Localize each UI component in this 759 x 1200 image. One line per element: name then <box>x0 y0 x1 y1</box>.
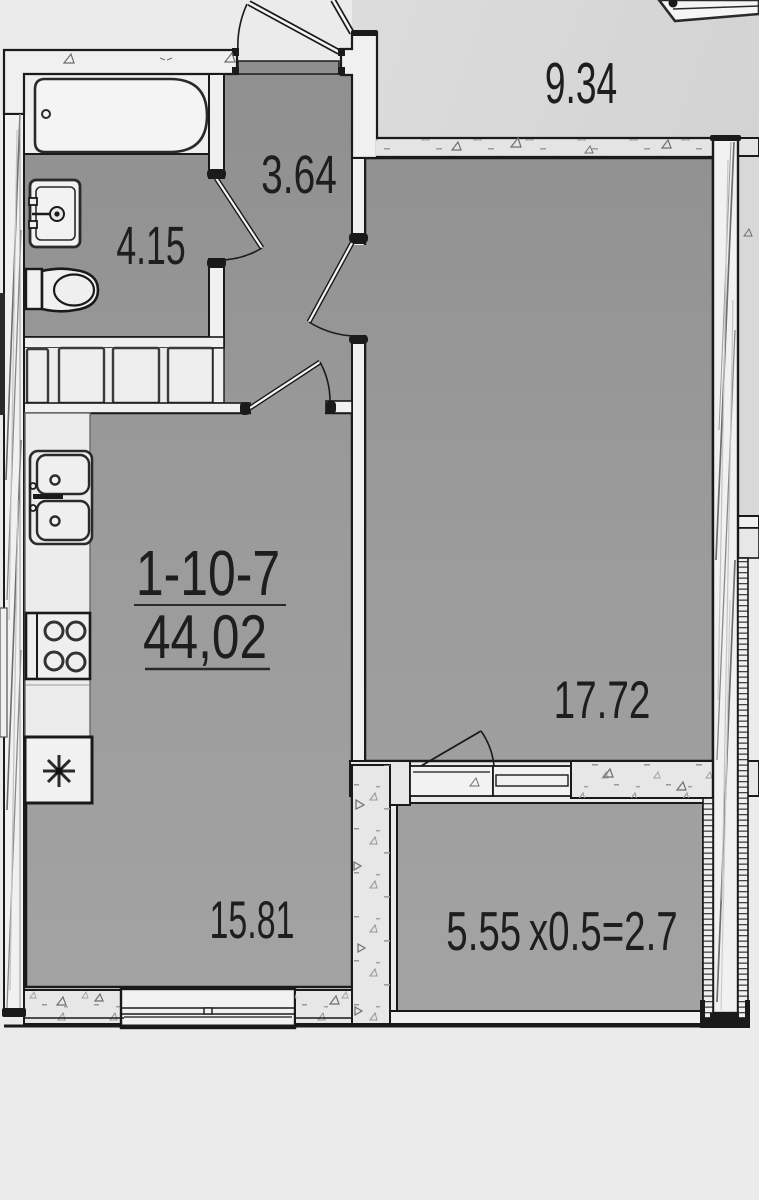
svg-text:15.81: 15.81 <box>210 891 295 950</box>
svg-text:44,02: 44,02 <box>143 603 267 672</box>
svg-text:1-10-7: 1-10-7 <box>136 537 280 609</box>
svg-text:4.15: 4.15 <box>116 216 185 276</box>
svg-text:5.55 x0.5=2.7: 5.55 x0.5=2.7 <box>446 900 677 962</box>
svg-text:3.64: 3.64 <box>261 145 337 205</box>
svg-text:17.72: 17.72 <box>554 671 651 730</box>
svg-text:9.34: 9.34 <box>545 51 617 116</box>
